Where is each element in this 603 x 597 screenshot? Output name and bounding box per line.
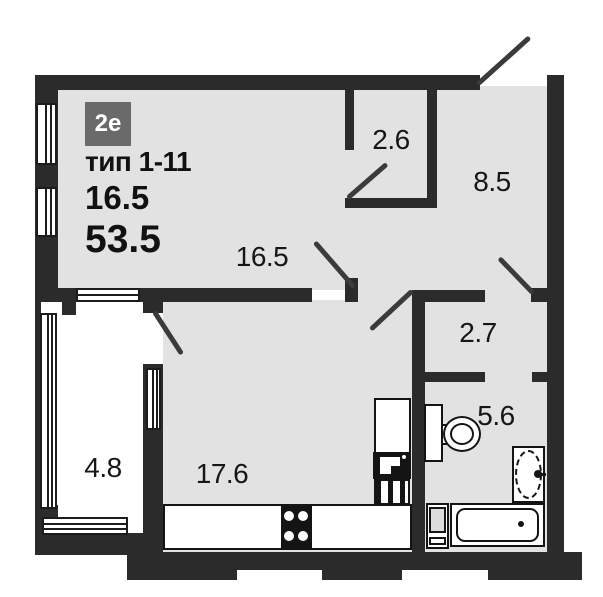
unit-badge: 2е (85, 102, 131, 146)
window-icon (36, 103, 57, 165)
vent-shaft-icon (374, 479, 410, 505)
unit-living-area: 16.5 (85, 179, 149, 217)
window-icon (36, 187, 57, 237)
wall-right (547, 75, 564, 580)
wall-wardrobe-right (427, 88, 437, 208)
room-label-hall: 8.5 (473, 166, 510, 198)
bathtub-inner-icon (456, 508, 539, 542)
stove-icon (281, 506, 312, 549)
room-label-bathroom: 5.6 (477, 400, 514, 432)
wall-top (35, 75, 480, 90)
wall-bottom-notch-right (402, 570, 488, 580)
wall-balcony-living (143, 430, 163, 555)
wall-wardrobe-bottom (345, 198, 433, 208)
sink-faucet-line (540, 473, 546, 476)
room-label-wardrobe: 2.6 (372, 124, 409, 156)
unit-type-label: тип 1-11 (85, 146, 191, 178)
unit-total-area: 53.5 (85, 218, 161, 262)
wall-balcony-pier (62, 302, 76, 315)
balcony-bottom-glazing-icon (42, 517, 128, 535)
entrance-door-icon (476, 35, 531, 86)
kitchen-cabinet (374, 398, 411, 454)
wall-bathroom-door-stub (532, 372, 547, 382)
toilet-bowl-inner-icon (450, 423, 474, 445)
wall-wardrobe-left (345, 88, 354, 150)
room-label-kitchen-living: 17.6 (196, 458, 249, 490)
floor-hall-lower (353, 200, 437, 292)
living-balcony-window-icon (146, 368, 161, 430)
wall-bedroom-bottom-left (35, 288, 76, 302)
washing-machine-panel-icon (429, 537, 446, 545)
bedroom-balcony-window-icon (76, 288, 140, 302)
wall-bottom (127, 552, 582, 580)
bathtub-drain-icon (518, 521, 524, 527)
wall-bedroom-bottom (140, 288, 312, 302)
wall-bottom-notch-left (237, 570, 322, 580)
room-label-balcony: 4.8 (84, 452, 121, 484)
wall-balcony-door-head (143, 288, 163, 313)
room-label-corridor: 2.7 (459, 317, 496, 349)
washing-machine-door-icon (429, 507, 446, 533)
room-label-bedroom: 16.5 (236, 241, 289, 273)
floor-plan: 2е тип 1-11 16.5 53.5 16.5 2.6 8.5 2.7 5… (0, 0, 603, 597)
kitchen-sink-icon (373, 452, 411, 479)
balcony-glazing-icon (40, 313, 57, 509)
